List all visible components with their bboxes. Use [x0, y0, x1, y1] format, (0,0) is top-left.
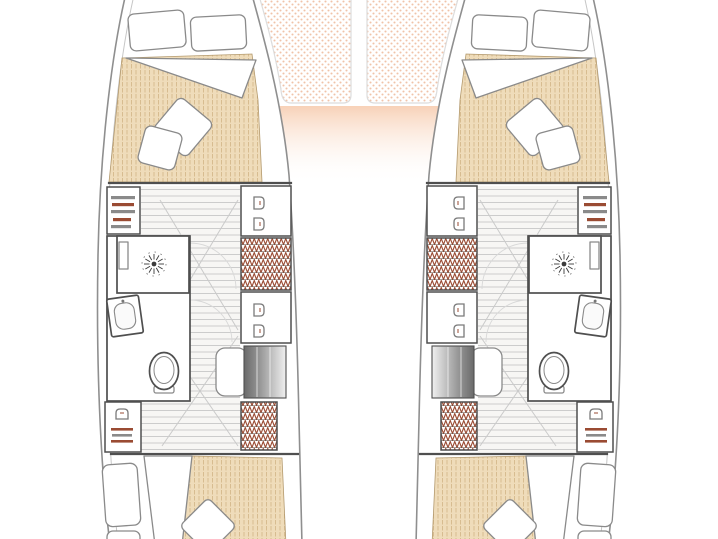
clothes-hook-icon [254, 218, 264, 230]
hanging-locker [241, 402, 277, 450]
bed-pillow [102, 463, 141, 527]
bed-pillow [190, 15, 247, 52]
clothes-hook-icon [254, 197, 264, 209]
sink [107, 295, 144, 337]
step-landing [216, 348, 247, 396]
bathroom [107, 236, 190, 401]
hanging-locker [241, 238, 291, 290]
clothes-hook-icon [254, 325, 264, 337]
shelf-locker [107, 187, 140, 234]
bed-pillow [128, 10, 187, 52]
hook-locker [241, 186, 291, 236]
hull-port [98, 0, 303, 539]
floorplan-canvas [0, 0, 718, 539]
companionway [216, 346, 286, 398]
toilet [150, 353, 179, 394]
locker-column [241, 186, 291, 343]
companionway-steps [244, 346, 286, 398]
hook-locker [105, 402, 141, 452]
clothes-hook-icon [254, 304, 264, 316]
hull-starboard [416, 0, 621, 539]
bow-trampolines [258, 0, 460, 103]
hook-locker [241, 292, 291, 343]
shower-shelf [119, 242, 128, 269]
forward-cabin [109, 10, 262, 182]
bed-pillow [107, 531, 140, 539]
clothes-hook-icon [116, 409, 128, 419]
